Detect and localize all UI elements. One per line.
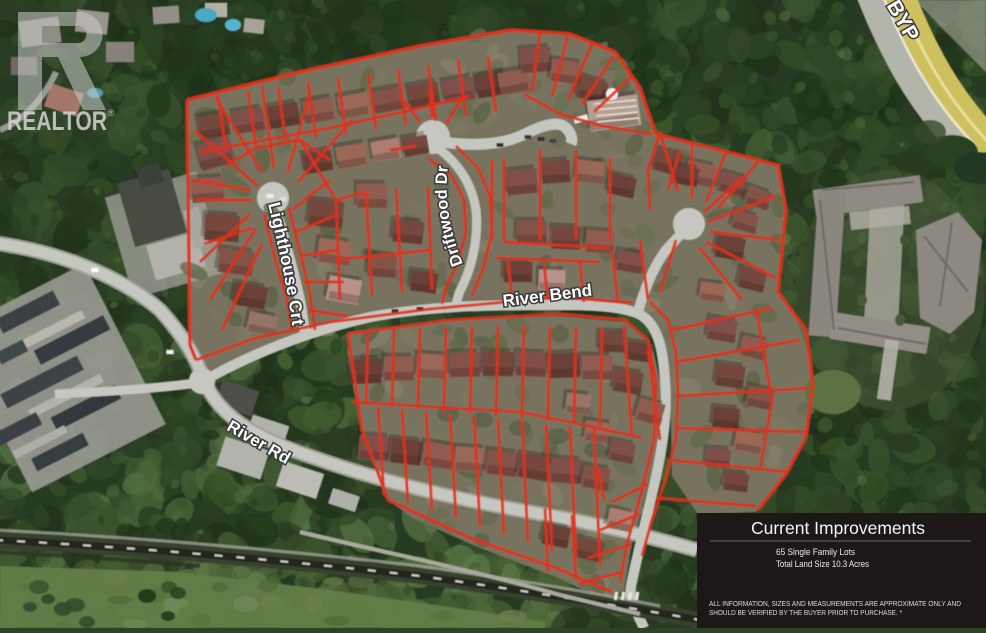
svg-text:SHOULD BE VERIFIED BY THE BUYE: SHOULD BE VERIFIED BY THE BUYER PRIOR TO…	[709, 608, 902, 617]
svg-text:REALTOR: REALTOR	[7, 106, 107, 136]
svg-text:Current Improvements: Current Improvements	[751, 518, 925, 538]
svg-text:Total Land Size 10.3 Acres: Total Land Size 10.3 Acres	[776, 559, 869, 570]
svg-text:65 Single Family Lots: 65 Single Family Lots	[776, 547, 855, 558]
svg-text:®: ®	[108, 108, 115, 118]
svg-text:ALL INFORMATION, SIZES AND MEA: ALL INFORMATION, SIZES AND MEASUREMENTS …	[709, 599, 961, 608]
